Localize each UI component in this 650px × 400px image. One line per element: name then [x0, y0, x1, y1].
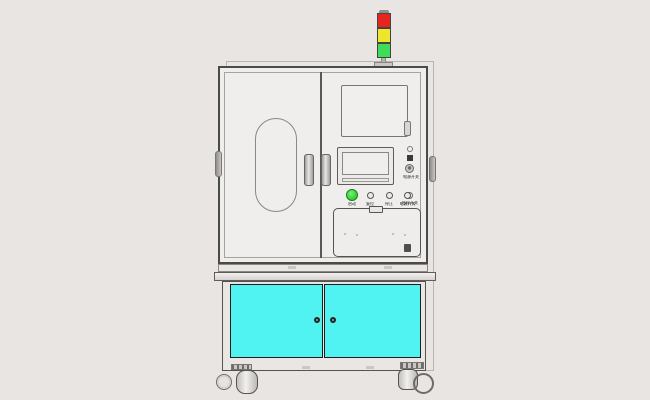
usb-port [407, 155, 413, 161]
tower-green-lamp [377, 43, 391, 58]
side-control-label-1: 电源开关 [398, 175, 424, 181]
screw-icon [392, 233, 394, 235]
screw-icon [404, 234, 406, 236]
tower-yellow-lamp [377, 28, 391, 43]
left-caster-wheel [236, 370, 258, 394]
left-side-handle [215, 151, 222, 177]
indicator-lamp [407, 146, 413, 152]
screw-icon [344, 233, 346, 235]
access-panel-tab [369, 206, 383, 213]
start-button [346, 189, 358, 201]
reset-button [367, 192, 374, 199]
lower-left-door [230, 284, 323, 358]
lower-right-door [324, 284, 421, 358]
left-leveling-foot [216, 374, 232, 390]
lower-right-door-knob [330, 317, 336, 323]
lower-left-door-knob [314, 317, 320, 323]
bench-rail [218, 264, 428, 272]
stop-button [386, 192, 393, 199]
base-bracket [302, 366, 310, 369]
base-bracket [366, 366, 374, 369]
rail-bracket [384, 266, 392, 269]
rail-bracket [288, 266, 296, 269]
right-door-window [341, 85, 408, 137]
power-button [404, 192, 411, 199]
hmi-bottom-strip [342, 178, 389, 182]
right-door-handle [321, 154, 331, 186]
tabletop [214, 272, 436, 281]
machine-front-view: 电源开关 急停开关 启动 复位 停止 电源开关 [0, 0, 650, 400]
left-door-handle [304, 154, 314, 186]
right-side-handle [429, 156, 436, 182]
key-switch [405, 164, 414, 173]
screw-icon [356, 234, 358, 236]
tower-red-lamp [377, 13, 391, 28]
right-window-latch [404, 121, 411, 136]
right-caster-plate [400, 362, 424, 369]
right-caster-swivel-ring [413, 373, 434, 394]
left-door-oval-window [255, 118, 297, 212]
access-panel-latch [404, 244, 411, 252]
hmi-screen [342, 152, 389, 175]
